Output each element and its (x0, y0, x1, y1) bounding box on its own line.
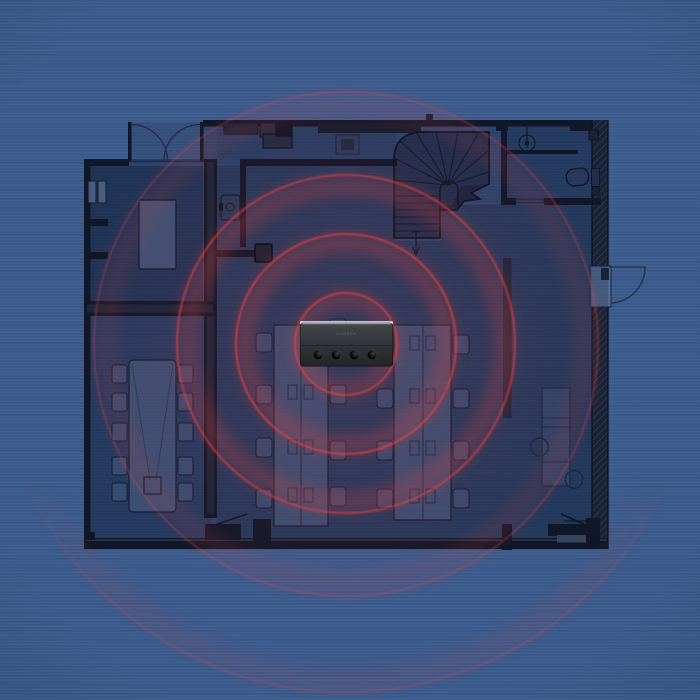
svg-text:UGREEN: UGREEN (336, 332, 356, 336)
